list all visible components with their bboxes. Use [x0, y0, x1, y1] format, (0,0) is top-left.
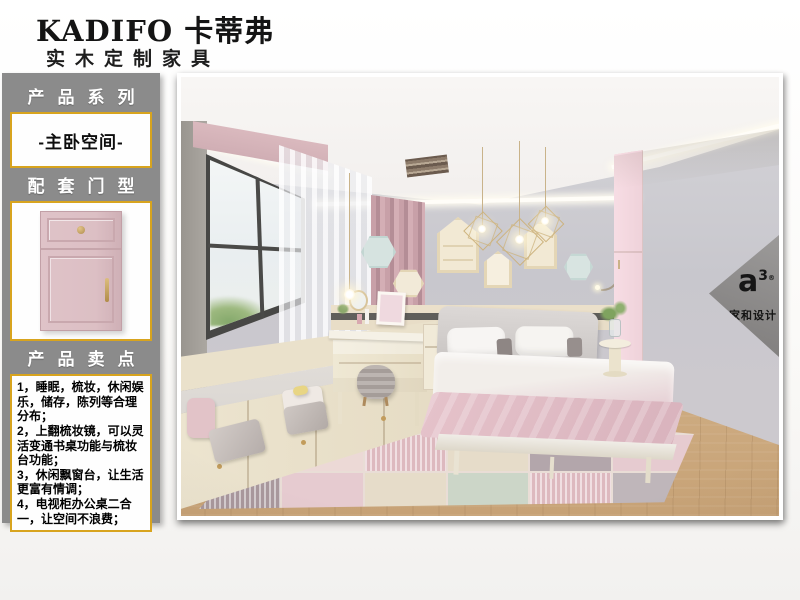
drawer-knob: [217, 464, 222, 469]
light-bulb: [515, 235, 524, 244]
series-value-box: -主卧空间-: [10, 112, 152, 168]
pouf-stool: [357, 365, 395, 399]
accent-pillow: [567, 338, 582, 357]
selling-point-1: 1，睡眠，梳妆，休闲娱乐，储存，陈列等合理分布；: [17, 380, 145, 424]
light-bulb: [541, 217, 549, 225]
bed-leg: [549, 457, 554, 479]
catalog-page: KADIFO 卡蒂弗 实木定制家具 产品系列 -主卧空间- 配套门型 产品卖点 …: [0, 0, 800, 600]
series-value: -主卧空间-: [38, 128, 123, 153]
light-bulb: [478, 225, 486, 233]
nightstand-top: [599, 339, 631, 348]
bed-pillow: [515, 326, 573, 357]
nightstand-base: [603, 371, 627, 377]
section-title-door: 配套门型: [2, 172, 160, 197]
selling-point-2: 2，上翻梳妆镜，可以灵活变通书桌功能与梳妆台功能；: [17, 424, 145, 468]
drawer-seam: [339, 362, 421, 364]
selling-points-box: 1，睡眠，梳妆，休闲娱乐，储存，陈列等合理分布； 2，上翻梳妆镜，可以灵活变通书…: [10, 374, 152, 532]
drawer-knob: [301, 440, 306, 445]
door-drawer: [41, 212, 121, 250]
door-style-box: [10, 201, 152, 341]
bed-leg: [645, 457, 651, 483]
door-handle: [105, 278, 109, 302]
nightstand-pedestal: [609, 346, 621, 372]
a3-logo: a3®: [738, 267, 775, 297]
table-leg: [338, 392, 342, 424]
perfume-bottle: [357, 314, 362, 324]
pendant-cord: [349, 173, 350, 291]
table-leg: [415, 392, 419, 426]
bedroom-render-photo: a3® 家和设计: [177, 73, 783, 520]
nightstand: [599, 339, 633, 383]
shelf-board: [443, 259, 473, 261]
brand-tagline: 实木定制家具: [46, 44, 220, 71]
sconce-bulb: [595, 285, 600, 290]
section-title-series: 产品系列: [2, 83, 160, 108]
selling-point-4: 4，电视柜办公桌二合一，让空间不浪费；: [17, 497, 145, 526]
bedroom-scene: a3® 家和设计: [181, 77, 779, 516]
bed-leg: [453, 451, 459, 475]
product-info-panel: 产品系列 -主卧空间- 配套门型 产品卖点 1，睡眠，梳妆，休闲娱乐，储存，陈列…: [2, 73, 160, 523]
bed: [429, 304, 684, 487]
door-panel: [41, 250, 121, 330]
desk-plant: [335, 302, 351, 316]
door-sample-image: [40, 211, 122, 331]
light-bulb: [344, 289, 355, 300]
section-title-selling: 产品卖点: [2, 345, 160, 370]
art-print: [376, 291, 406, 325]
selling-point-3: 3，休闲飘窗台，让生活更富有情调；: [17, 468, 145, 497]
glass-vase: [609, 319, 621, 337]
door-knob: [77, 226, 85, 234]
perfume-bottle: [365, 309, 369, 324]
shelf-board: [443, 245, 473, 247]
